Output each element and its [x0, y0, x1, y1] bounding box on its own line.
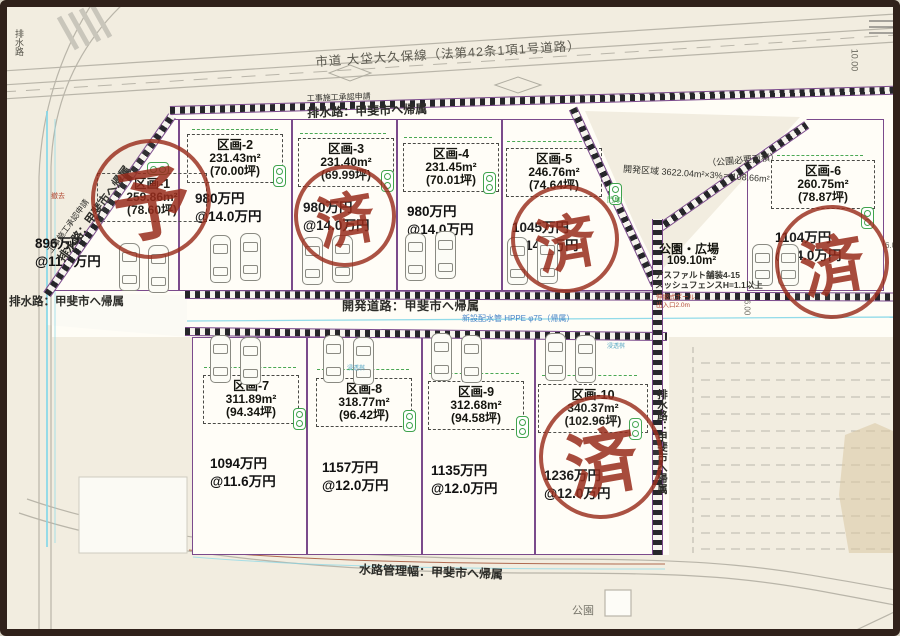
utility-line — [192, 129, 278, 130]
plot-8-label: 区画-8318.77m²(96.42坪) — [316, 378, 412, 427]
car-icon — [210, 335, 231, 383]
drain-top-label: 工事施工承認申請 排水路：甲斐市へ帰属 — [307, 89, 428, 121]
road-diamond-markings — [329, 65, 541, 93]
plot-6-label: 区画-6260.75m²(78.87坪) — [771, 160, 875, 209]
utility-box-icon — [293, 408, 306, 430]
dimension-10m: 10.00 — [849, 49, 859, 72]
site-plan-drawing: 区画-1259.86m²(78.60坪) 区画-2231.43m²(70.00坪… — [0, 0, 900, 636]
car-icon — [435, 231, 456, 279]
edge-bar — [895, 175, 900, 307]
car-icon — [210, 235, 231, 283]
infiltration-basin-note: 浸透桝 — [607, 341, 625, 350]
plot-8-price: 1157万円@12.0万円 — [322, 459, 388, 494]
dimension-6m-road: 6.00 — [742, 300, 751, 316]
plot-7-price: 1094万円@11.6万円 — [210, 455, 276, 490]
utility-box-icon — [483, 172, 496, 194]
park-bottom-label: 公園 — [572, 602, 594, 618]
adjacent-land-patch — [839, 423, 900, 553]
utility-box-icon — [273, 165, 286, 187]
dev-road-label: 開発道路：甲斐市へ帰属 — [342, 297, 480, 314]
park-entrance-note: 出入口2.0m — [656, 299, 690, 309]
car-icon — [405, 233, 426, 281]
car-icon — [575, 335, 596, 383]
removal-note: 撤去 — [51, 191, 65, 201]
adjacent-building — [79, 477, 187, 553]
infiltration-basin-note: 浸透桝 — [347, 363, 365, 372]
water-pipe-label: 新設配水管 HPPE φ75（帰属） — [462, 313, 574, 324]
utility-line — [507, 141, 587, 142]
plot-9-label: 区画-9312.68m²(94.58坪) — [428, 381, 524, 430]
car-icon — [353, 337, 374, 385]
crosswalk-stripes — [59, 7, 110, 49]
car-icon — [323, 335, 344, 383]
scale-ticks — [869, 21, 900, 33]
utility-line — [777, 155, 863, 156]
car-icon — [461, 335, 482, 383]
park-fence: メッシュフェンスH=1.1以上 — [655, 279, 763, 291]
gate-label: 門扉 — [607, 195, 621, 205]
car-icon — [240, 337, 261, 385]
utility-box-icon — [403, 410, 416, 432]
utility-box-icon — [516, 416, 529, 438]
utility-line — [300, 133, 386, 134]
car-icon — [545, 333, 566, 381]
park-area: 109.10m² — [667, 255, 716, 267]
car-icon — [240, 233, 261, 281]
plot-9-price: 1135万円@12.0万円 — [431, 462, 497, 497]
car-icon — [431, 333, 452, 381]
drain-topleft-vertical-label: 排水路 — [13, 29, 26, 56]
utility-line — [404, 137, 492, 138]
drain-left-label: 排水路：甲斐市へ帰属 — [9, 293, 124, 309]
